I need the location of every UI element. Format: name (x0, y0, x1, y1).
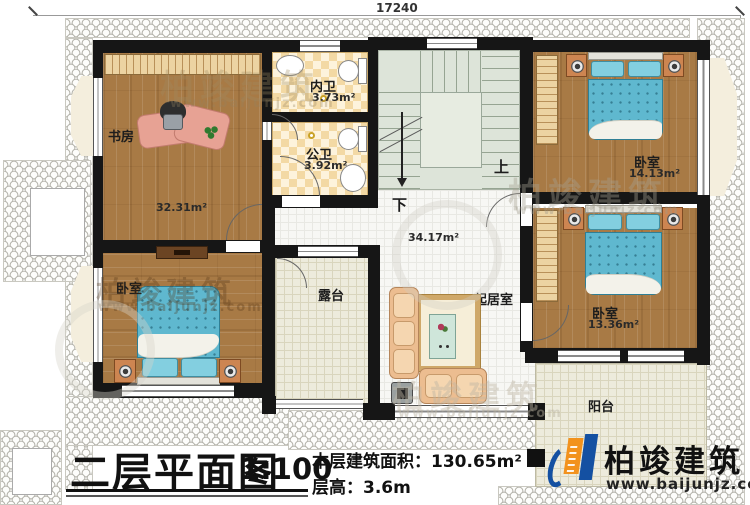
bed-headboard (137, 377, 220, 385)
pillow (626, 214, 660, 230)
terrace-railing (276, 399, 363, 409)
dormer-skylight (30, 188, 85, 256)
bedroom-top-right-area: 14.13m² (629, 167, 680, 180)
pillow (591, 61, 624, 77)
bed-sheet (586, 274, 661, 294)
roof-tiles-bottom-left (65, 396, 290, 446)
plant (203, 124, 219, 140)
inner-bath-area: 3.73m² (312, 91, 355, 104)
nightstand (663, 54, 684, 77)
wall (262, 195, 275, 398)
sofa-cushion (393, 321, 415, 346)
toilet-bowl (338, 60, 359, 82)
window (427, 38, 477, 49)
sofa-cushion (425, 374, 452, 398)
stair-direction-line (401, 112, 403, 180)
terrace-door (298, 246, 358, 257)
wall-post (262, 396, 276, 414)
wall (520, 40, 710, 52)
pillow (628, 61, 661, 77)
sofa-cushion (456, 374, 483, 398)
tv-cabinet (156, 246, 208, 259)
title-underline (66, 495, 308, 497)
nightstand (563, 207, 584, 230)
window (558, 350, 620, 362)
sofa-cushion (393, 349, 415, 374)
stair-arrow-down (397, 178, 407, 192)
stairs-up-label: 上 (494, 156, 509, 177)
company-website: www.baijunjz.com (606, 475, 750, 493)
door-opening (226, 241, 260, 252)
table-flowers (438, 323, 448, 333)
balcony-label: 阳台 (588, 396, 614, 415)
study-label: 书房 (108, 126, 134, 145)
logo-square (527, 449, 545, 467)
stairs-down-label: 下 (392, 194, 407, 215)
tv (174, 250, 190, 255)
top-dimension-label: 17240 (376, 1, 418, 15)
pillow (181, 358, 217, 377)
top-dimension-line (33, 15, 741, 16)
nightstand (662, 207, 683, 230)
study-closet (104, 54, 261, 75)
wall (262, 195, 378, 208)
bed-sheet (589, 120, 662, 139)
stair-landing (420, 92, 482, 168)
coffee-table (429, 314, 456, 359)
lamp (568, 213, 581, 226)
closet (536, 55, 558, 145)
window (697, 60, 710, 195)
bed-headboard (585, 205, 662, 213)
bedroom-right-area: 13.36m² (588, 318, 639, 331)
study-area: 32.31m² (156, 201, 207, 214)
roof-tiles-top (65, 18, 690, 38)
watermark-circle (392, 200, 502, 310)
floor-height-text: 层高：3.6m (312, 473, 411, 498)
toilet-bowl (338, 128, 359, 150)
window (628, 350, 684, 362)
nightstand (219, 359, 241, 383)
door-opening (521, 193, 532, 226)
wall (368, 37, 378, 208)
stair-flight-top (420, 51, 482, 92)
floor-area-text: 本层建筑面积：130.65m² (312, 447, 522, 472)
floor-plan: 17240 10540 上 下 (0, 0, 750, 505)
nightstand (566, 54, 587, 77)
bedroom-left-label: 卧室 (116, 278, 142, 297)
sofa (419, 368, 487, 404)
company-logo-icon (549, 434, 599, 492)
terrace-label: 露台 (318, 285, 344, 304)
lamp (224, 365, 237, 378)
wall (93, 40, 270, 53)
window (300, 40, 340, 52)
watermark-circle (55, 300, 155, 400)
sofa (389, 287, 419, 379)
wall (533, 192, 697, 204)
tv-screen (397, 388, 408, 399)
lamp (667, 213, 680, 226)
tv (391, 382, 413, 404)
wall (368, 245, 380, 404)
pillow (588, 214, 622, 230)
drain (308, 132, 315, 139)
toilet-tank (358, 126, 367, 152)
wall-post (528, 403, 545, 420)
title-underline (66, 489, 308, 492)
lamp (668, 60, 681, 73)
door-opening (282, 196, 320, 207)
window (93, 78, 103, 156)
public-bath-area: 3.92m² (304, 159, 347, 172)
lamp (571, 60, 584, 73)
balcony-door (395, 405, 528, 418)
toilet-tank (358, 58, 367, 84)
dormer-skylight (12, 448, 52, 495)
desk-monitor (163, 114, 183, 130)
table-dot (439, 345, 442, 348)
sink (276, 55, 304, 76)
closet (536, 210, 558, 302)
door-opening (521, 303, 532, 341)
table-dot (446, 345, 449, 348)
wall (363, 403, 395, 420)
bed-headboard (588, 52, 663, 60)
